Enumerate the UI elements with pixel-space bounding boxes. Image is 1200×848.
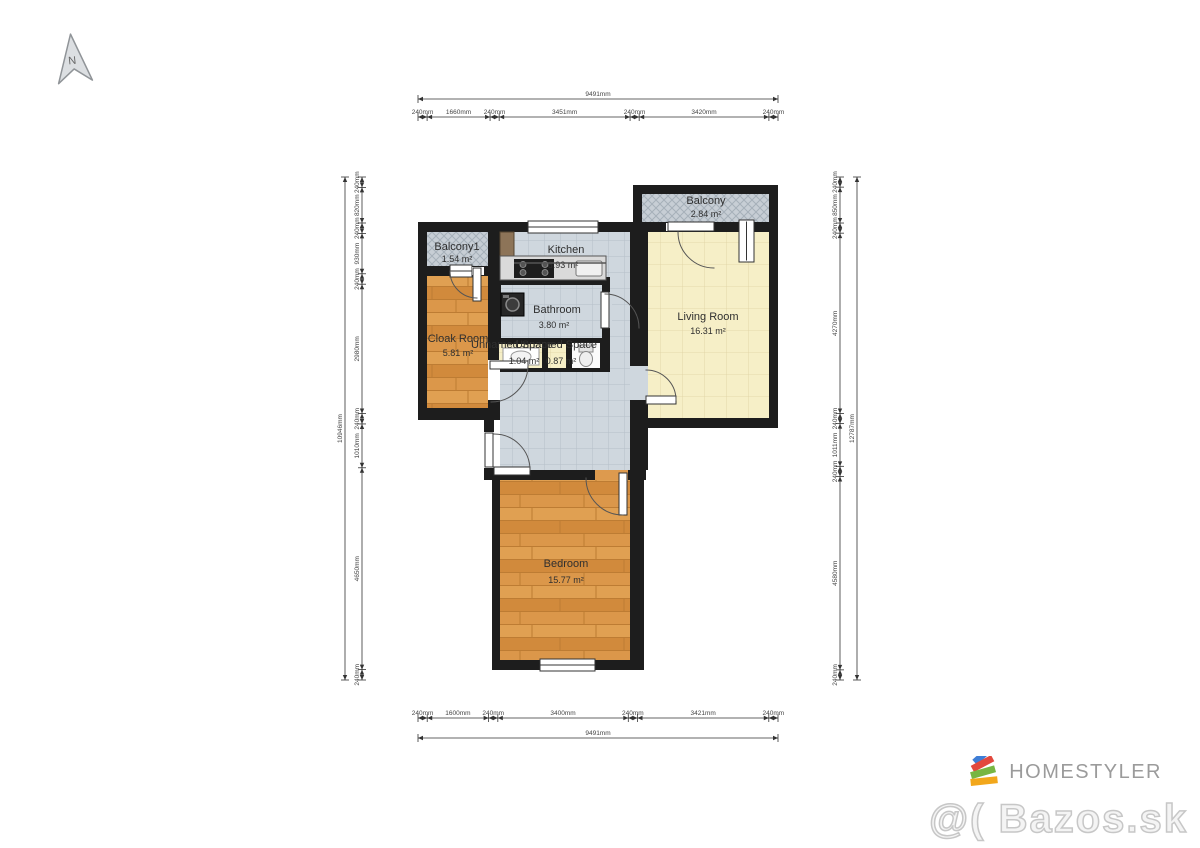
dim-arrow <box>418 97 423 101</box>
washing-machine-door-icon <box>506 298 519 311</box>
wall-left-exterior <box>418 222 427 420</box>
dim-label: 2980mm <box>354 336 361 361</box>
north-arrow: N <box>54 32 93 83</box>
living-room-area: 16.31 m² <box>690 326 726 336</box>
wall-living-right <box>769 222 778 428</box>
dim-arrow <box>773 736 778 740</box>
dim-label: 820mm <box>354 194 361 216</box>
bedroom-floor <box>500 480 630 660</box>
dim-label: 3451mm <box>552 109 577 116</box>
dim-label: 240mm <box>832 461 839 483</box>
kitchen-label: Kitchen <box>548 244 585 256</box>
bathroom-label: Bathroom <box>533 304 581 316</box>
bedroom-area: 15.77 m² <box>548 575 584 585</box>
dim-label: 1660mm <box>446 109 471 116</box>
dim-label: 850mm <box>832 194 839 216</box>
balcony1-area: 1.54 m² <box>442 254 473 264</box>
balcony-area: 2.84 m² <box>691 209 722 219</box>
dim-label: 1600mm <box>445 710 470 717</box>
dim-arrow <box>855 177 859 182</box>
dim-label: 240mm <box>832 171 839 193</box>
bathroom-area: 3.80 m² <box>539 320 570 330</box>
dim-label: 240mm <box>354 217 361 239</box>
bazos-watermark: @( Bazos.sk <box>929 797 1188 842</box>
dim-label: 3420mm <box>691 109 716 116</box>
living-room-label: Living Room <box>677 311 738 323</box>
dim-label: 4270mm <box>832 311 839 336</box>
dim-label: 240mm <box>354 171 361 193</box>
unnamed-space2-label: Unnamed Space <box>515 339 597 351</box>
wall-bedroom-right <box>630 470 644 670</box>
dim-arrow <box>418 736 423 740</box>
kitchen-area: 6.93 m² <box>548 260 579 270</box>
dim-label: 240mm <box>622 710 644 717</box>
balcony-label: Balcony <box>686 195 726 207</box>
dim-label: 9491mm <box>585 91 610 98</box>
dim-label: 240mm <box>763 710 785 717</box>
dim-arrow <box>360 468 364 473</box>
balcony1-door-leaf <box>473 268 481 301</box>
dim-label: 240mm <box>832 217 839 239</box>
dim-label: 240mm <box>482 710 504 717</box>
cloak-room-area: 5.81 m² <box>443 348 474 358</box>
floorplan-canvas: Balcony1 1.54 m² Cloak Room 5.81 m² Kitc… <box>0 0 1200 848</box>
washing-machine-panel-icon <box>503 295 509 298</box>
dim-arrow <box>773 97 778 101</box>
wall-bedroom-left <box>492 470 500 670</box>
wall-living-bottom <box>630 418 778 428</box>
dim-label: 240mm <box>832 408 839 430</box>
dim-label: 4580mm <box>832 561 839 586</box>
dim-label: 3421mm <box>691 710 716 717</box>
wall-hall-living <box>630 222 648 470</box>
wall-balcony-top <box>633 185 778 194</box>
dim-arrow <box>360 463 364 468</box>
entry-door-leaf <box>494 467 530 475</box>
dim-arrow <box>343 177 347 182</box>
dim-label: 1010mm <box>354 433 361 458</box>
toilet-bowl-icon <box>580 352 593 367</box>
unnamed-space2-area: 0.87 m² <box>546 356 577 366</box>
bedroom-label: Bedroom <box>544 558 589 570</box>
dim-label: 240mm <box>412 710 434 717</box>
entry-door-jamb <box>485 433 493 467</box>
dim-label: 240mm <box>763 109 785 116</box>
dim-label: 240mm <box>354 664 361 686</box>
homestyler-logo-icon <box>967 756 1001 788</box>
balcony-door-leaf <box>668 222 714 231</box>
dim-label: 240mm <box>354 408 361 430</box>
balcony1-label: Balcony1 <box>434 241 479 253</box>
dim-label: 1011mm <box>832 433 839 458</box>
dim-label: 240mm <box>354 268 361 290</box>
dim-arrow <box>855 675 859 680</box>
dim-label: 12787mm <box>849 414 856 443</box>
burner-icon <box>542 270 548 276</box>
unnamed-space1-area: 1.04 m² <box>509 356 540 366</box>
dim-arrow <box>343 675 347 680</box>
dim-label: 9491mm <box>585 730 610 737</box>
dim-label: 240mm <box>624 109 646 116</box>
bedroom-door-leaf <box>619 473 627 515</box>
bathroom-door-leaf <box>601 292 609 328</box>
north-label: N <box>68 55 77 68</box>
dim-label: 240mm <box>832 664 839 686</box>
living-door-leaf <box>646 396 676 404</box>
dim-label: 4650mm <box>354 556 361 581</box>
floorplan-drawing: Balcony1 1.54 m² Cloak Room 5.81 m² Kitc… <box>0 0 1200 848</box>
dim-label: 240mm <box>484 109 506 116</box>
dim-label: 240mm <box>412 109 434 116</box>
dim-label: 3400mm <box>550 710 575 717</box>
homestyler-brand: HOMESTYLER <box>967 756 1162 788</box>
dim-label: 930mm <box>354 243 361 265</box>
living-door-gap <box>630 366 648 400</box>
dim-label: 10946mm <box>337 414 344 443</box>
burner-icon <box>520 270 526 276</box>
homestyler-logo-text: HOMESTYLER <box>1009 761 1162 784</box>
